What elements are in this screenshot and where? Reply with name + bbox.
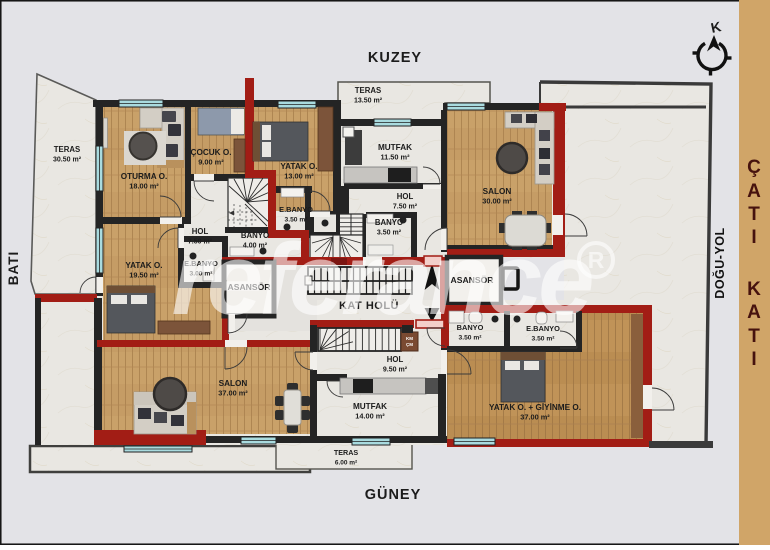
svg-text:3.50 m²: 3.50 m²	[532, 336, 556, 343]
svg-text:18.00 m²: 18.00 m²	[129, 182, 159, 191]
svg-text:14.00 m²: 14.00 m²	[355, 412, 385, 421]
svg-text:KM: KM	[406, 336, 413, 341]
svg-text:E.BANYO: E.BANYO	[279, 205, 313, 214]
svg-text:3.50 m²: 3.50 m²	[285, 217, 309, 224]
svg-text:KUZEY: KUZEY	[368, 50, 422, 66]
svg-text:referance: referance	[172, 224, 593, 336]
svg-text:13.00 m²: 13.00 m²	[284, 172, 314, 181]
svg-text:GÜNEY: GÜNEY	[365, 486, 422, 503]
svg-text:SALON: SALON	[219, 379, 248, 388]
svg-text:ÇM: ÇM	[406, 342, 413, 347]
svg-text:37.00 m²: 37.00 m²	[520, 413, 550, 422]
svg-text:30.00 m²: 30.00 m²	[482, 197, 512, 206]
svg-text:7.50 m²: 7.50 m²	[393, 204, 418, 211]
svg-text:R: R	[588, 247, 605, 273]
svg-text:30.50 m²: 30.50 m²	[53, 157, 82, 164]
svg-text:19.50 m²: 19.50 m²	[129, 271, 159, 280]
svg-text:TERAS: TERAS	[334, 448, 359, 457]
svg-text:TERAS: TERAS	[355, 86, 381, 95]
svg-text:T: T	[748, 204, 760, 225]
svg-text:11.50 m²: 11.50 m²	[380, 153, 410, 162]
svg-text:DOĞU-YOL: DOĞU-YOL	[712, 227, 727, 298]
svg-text:37.00 m²: 37.00 m²	[218, 389, 248, 398]
svg-text:OTURMA O.: OTURMA O.	[121, 172, 168, 181]
svg-text:13.50 m²: 13.50 m²	[354, 98, 383, 105]
svg-text:9.00 m²: 9.00 m²	[198, 158, 224, 167]
svg-text:MUTFAK: MUTFAK	[378, 143, 412, 152]
svg-text:YATAK O.: YATAK O.	[280, 162, 317, 171]
svg-text:YATAK O.: YATAK O.	[125, 261, 162, 270]
svg-text:6.00 m²: 6.00 m²	[335, 460, 358, 467]
svg-text:I: I	[751, 349, 756, 370]
svg-text:SALON: SALON	[483, 187, 512, 196]
svg-text:HOL: HOL	[387, 355, 404, 364]
svg-text:MUTFAK: MUTFAK	[353, 402, 387, 411]
svg-text:A: A	[747, 302, 761, 323]
svg-text:ÇOCUK O.: ÇOCUK O.	[191, 148, 232, 157]
svg-text:HOL: HOL	[397, 192, 414, 201]
svg-text:Ç: Ç	[747, 157, 761, 178]
svg-text:A: A	[747, 181, 761, 202]
svg-text:K: K	[747, 279, 761, 300]
svg-text:T: T	[748, 326, 760, 347]
svg-text:TERAS: TERAS	[54, 145, 80, 154]
svg-text:I: I	[751, 227, 756, 248]
svg-text:YATAK O. + GİYİNME O.: YATAK O. + GİYİNME O.	[489, 402, 581, 412]
svg-text:BATI: BATI	[6, 251, 21, 286]
svg-text:9.50 m²: 9.50 m²	[383, 367, 408, 374]
